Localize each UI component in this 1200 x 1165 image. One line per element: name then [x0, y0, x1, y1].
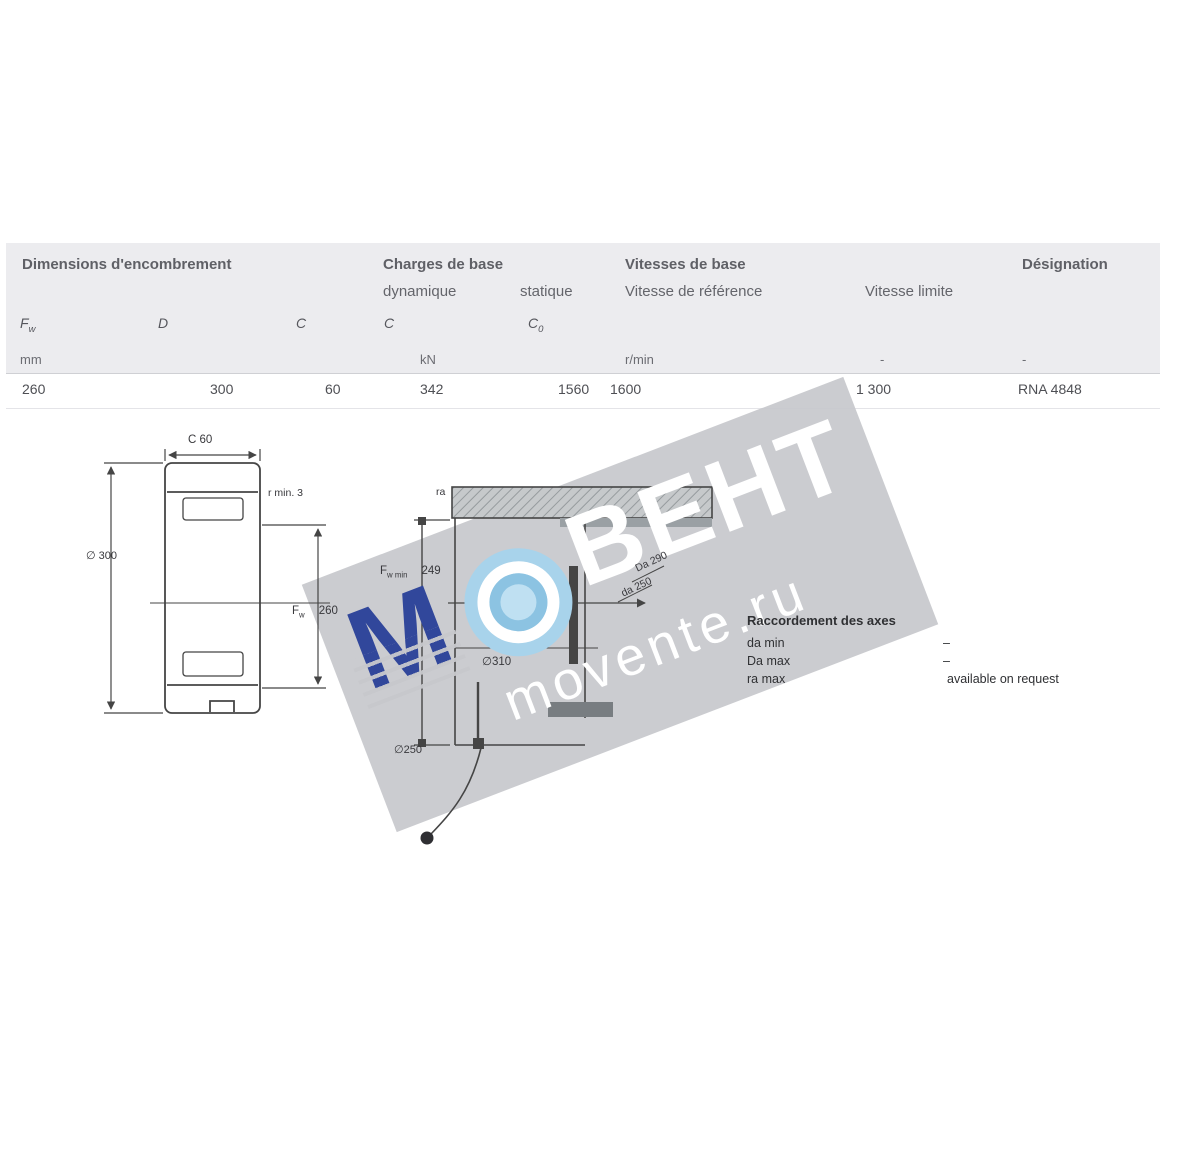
cell-c0: 1560 — [558, 381, 589, 397]
cell-c: 60 — [325, 381, 341, 397]
dim-label-bore: Fw260 — [292, 605, 338, 619]
dim-label-fw-min-sub: w min — [387, 570, 407, 579]
symbol-c0: C0 — [528, 315, 543, 335]
cell-v-ref: 1600 — [610, 381, 641, 397]
dim-label-fw-min: Fw min249 — [380, 565, 441, 579]
cell-d: 300 — [210, 381, 233, 397]
symbol-c: C — [296, 315, 306, 331]
symbol-fw: Fw — [20, 315, 35, 335]
cell-v-lim: 1 300 — [856, 381, 891, 397]
symbol-c0-main: C — [528, 315, 538, 331]
abutment-title: Raccordement des axes — [747, 613, 896, 628]
unit-dash2: - — [1022, 352, 1026, 367]
unit-kn: kN — [420, 352, 436, 367]
dim-label-corner-radius: r min. 3 — [268, 487, 303, 499]
cell-c-dyn: 342 — [420, 381, 443, 397]
col-header-speeds: Vitesses de base — [625, 256, 746, 273]
symbol-fw-main: F — [20, 315, 29, 331]
unit-dash1: - — [880, 352, 884, 367]
abutment-row-label: ra max — [747, 672, 785, 686]
abutment-row-label: Da max — [747, 654, 790, 668]
dim-label-outer-diameter: ∅ 300 — [86, 549, 117, 562]
col-header-dynamic: dynamique — [383, 283, 456, 300]
symbol-fw-sub: w — [29, 324, 36, 335]
dim-label-bore-sub: w — [299, 610, 305, 619]
col-header-speed-limit: Vitesse limite — [865, 283, 953, 300]
cell-fw: 260 — [22, 381, 45, 397]
dim-label-fw-min-value: 249 — [421, 565, 440, 577]
symbol-c0-sub: 0 — [538, 324, 543, 335]
unit-rpm: r/min — [625, 352, 654, 367]
col-header-designation: Désignation — [1022, 256, 1108, 273]
col-header-static: statique — [520, 283, 573, 300]
dim-label-shaft-diameter: ∅250 — [394, 743, 422, 756]
dim-label-bore-value: 260 — [319, 605, 338, 617]
col-header-loads: Charges de base — [383, 256, 503, 273]
abutment-row-value: – — [943, 654, 950, 668]
table-bottom-separator — [6, 408, 1160, 409]
dim-label-housing-bore: ∅310 — [482, 654, 511, 668]
dim-label-bore-symbol: F — [292, 605, 299, 617]
abutment-row-value: available on request — [947, 672, 1059, 686]
abutment-row-value: – — [943, 636, 950, 650]
symbol-c-dyn: C — [384, 315, 394, 331]
cell-designation: RNA 4848 — [1018, 381, 1082, 397]
dim-label-ra: ra — [436, 486, 445, 498]
symbol-d: D — [158, 315, 168, 331]
col-header-dimensions: Dimensions d'encombrement — [22, 256, 231, 273]
watermark-band — [302, 377, 938, 832]
table-separator — [6, 373, 1160, 374]
abutment-row-label: da min — [747, 636, 785, 650]
col-header-speed-reference: Vitesse de référence — [625, 283, 762, 300]
dim-label-fw-min-symbol: F — [380, 565, 387, 577]
catalog-page: Dimensions d'encombrement Charges de bas… — [0, 0, 1200, 1165]
dim-label-width: C 60 — [188, 434, 212, 446]
unit-mm: mm — [20, 352, 42, 367]
